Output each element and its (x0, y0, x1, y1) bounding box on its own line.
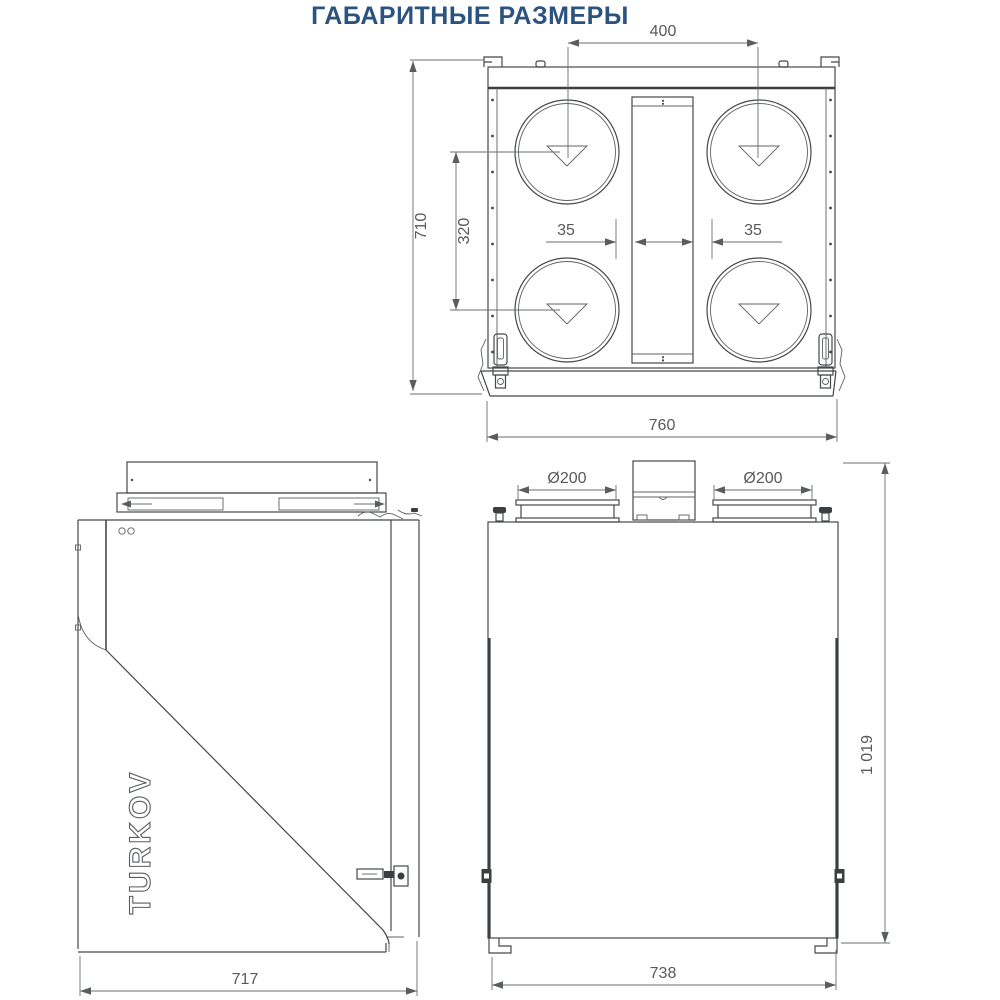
dimension-d200-left: Ø200 (518, 470, 616, 499)
dim-label-35-right: 35 (744, 222, 762, 239)
dim-label-320: 320 (456, 218, 473, 245)
dimension-1019: 1 019 (841, 463, 890, 943)
flow-triangle-icon (739, 146, 779, 166)
door-edges (489, 638, 836, 938)
page-title: ГАБАРИТНЫЕ РАЗМЕРЫ (311, 2, 629, 30)
dimension-d200-right: Ø200 (714, 470, 812, 499)
hinge-right (835, 869, 845, 883)
base-plate (78, 943, 386, 952)
dimension-35-right: 35 (712, 219, 782, 259)
turkov-logo: TURKOV (124, 770, 157, 915)
flow-triangle-icon (547, 146, 587, 166)
panel-curve (78, 614, 106, 650)
top-view: 400 710 320 35 35 (409, 23, 845, 442)
vent-hole (128, 528, 134, 534)
flange-tab-left (536, 61, 545, 67)
dimension-35-left: 35 (546, 219, 616, 259)
vent-hole (119, 528, 125, 534)
dim-label-760: 760 (649, 417, 676, 434)
dimension-400: 400 (568, 23, 758, 158)
knob-left (493, 507, 506, 521)
mounting-frame (117, 493, 386, 512)
front-body (488, 522, 838, 938)
dim-label-717: 717 (232, 971, 259, 988)
dim-label-d200-right: Ø200 (743, 470, 782, 487)
side-view: TURKOV 717 (76, 462, 423, 996)
knob-right (819, 507, 832, 521)
dimension-760: 760 (487, 399, 837, 442)
foot-right (815, 938, 837, 953)
plenum-box (127, 462, 377, 493)
panel-seams (497, 88, 826, 368)
front-view: Ø200 Ø200 1 019 738 (482, 461, 891, 990)
duct-collar-right (713, 500, 816, 522)
dimension-320: 320 (450, 152, 560, 310)
door-bottom-tick (386, 937, 404, 952)
door-handle (357, 866, 408, 886)
central-divider (632, 97, 693, 363)
dim-label-d200-left: Ø200 (547, 470, 586, 487)
screw-dots-right (829, 99, 832, 354)
foot-left (489, 938, 511, 953)
dim-label-738: 738 (650, 965, 677, 982)
latch-bottom-left (478, 334, 508, 391)
duct-opening-top-right (707, 100, 811, 204)
dimension-738: 738 (492, 950, 836, 990)
dimension-drawing: ГАБАРИТНЫЕ РАЗМЕРЫ (0, 0, 1000, 1000)
corner-bracket-left (484, 57, 502, 67)
duct-opening-bottom-right (707, 258, 811, 362)
flow-triangle-icon (739, 304, 779, 324)
bottom-flange (481, 371, 836, 396)
latch-bottom-right (818, 334, 845, 391)
hinge-left (482, 869, 492, 883)
electrical-box (633, 461, 695, 520)
dim-label-400: 400 (650, 23, 677, 40)
dim-label-35-left: 35 (557, 222, 575, 239)
page: ГАБАРИТНЫЕ РАЗМЕРЫ (0, 0, 1000, 1000)
flow-triangle-icon (547, 304, 587, 324)
dimension-717: 717 (80, 941, 417, 996)
corner-bracket-right (821, 57, 839, 67)
dimension-35-middle-line (635, 238, 693, 245)
dim-label-1019: 1 019 (859, 735, 876, 775)
duct-collar-left (516, 500, 619, 522)
flange-tab-right (779, 61, 788, 67)
screw-dots-left (491, 99, 494, 354)
dim-label-710: 710 (413, 213, 430, 240)
